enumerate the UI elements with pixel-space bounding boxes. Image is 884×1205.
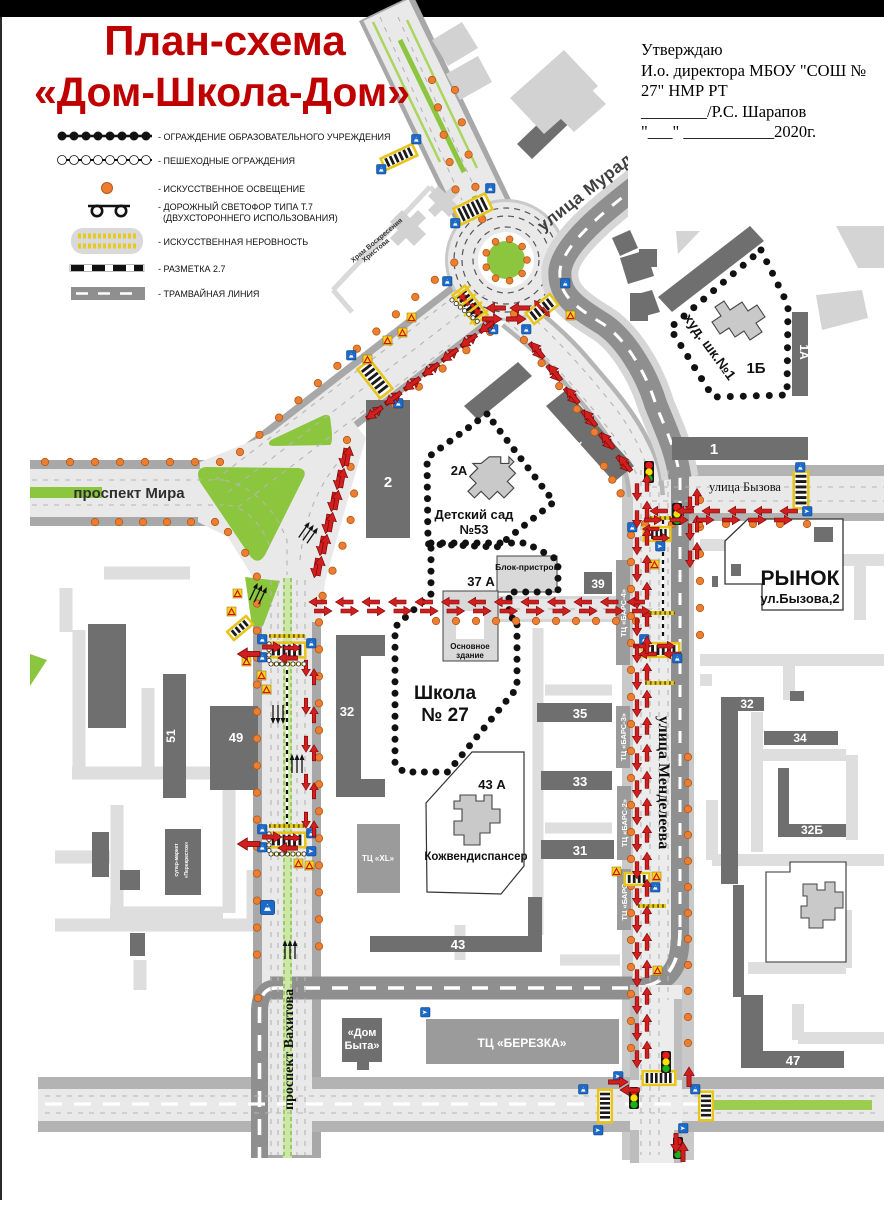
svg-text:47: 47 xyxy=(786,1053,800,1068)
svg-text:32: 32 xyxy=(740,697,754,711)
svg-text:Детский сад: Детский сад xyxy=(435,507,515,522)
svg-text:43: 43 xyxy=(451,937,465,952)
svg-text:49: 49 xyxy=(229,730,243,745)
svg-text:32: 32 xyxy=(340,704,354,719)
svg-text:1А: 1А xyxy=(797,344,811,360)
svg-text:РЫНОК: РЫНОК xyxy=(761,567,840,590)
svg-text:улица Бызова: улица Бызова xyxy=(709,480,781,494)
svg-text:И.о. директора МБОУ "СОШ №: И.о. директора МБОУ "СОШ № xyxy=(641,61,866,80)
svg-text:Блок-пристрой: Блок-пристрой xyxy=(495,562,559,572)
svg-text:34: 34 xyxy=(793,731,807,745)
svg-text:32Б: 32Б xyxy=(801,823,823,837)
svg-text:супер-маркет: супер-маркет xyxy=(174,843,180,877)
svg-text:31: 31 xyxy=(573,843,587,858)
svg-text:1: 1 xyxy=(710,441,718,458)
svg-text:(ДВУХСТОРОННЕГО ИСПОЛЬЗОВАНИЯ): (ДВУХСТОРОННЕГО ИСПОЛЬЗОВАНИЯ) xyxy=(163,213,338,223)
svg-text:проспект Мира: проспект Мира xyxy=(73,485,185,502)
svg-text:ТЦ «БАРС-3»: ТЦ «БАРС-3» xyxy=(619,713,628,761)
svg-text:Основное: Основное xyxy=(450,642,490,651)
svg-text:ул.Бызова,2: ул.Бызова,2 xyxy=(760,591,839,606)
svg-text:улица Менделеева: улица Менделеева xyxy=(655,716,672,849)
svg-text:Школа: Школа xyxy=(414,683,477,704)
svg-text:«Дом: «Дом xyxy=(348,1027,377,1039)
svg-text:здание: здание xyxy=(456,651,484,660)
svg-text:План-схема: План-схема xyxy=(104,17,346,64)
svg-text:№ 27: № 27 xyxy=(421,705,469,726)
svg-text:- РАЗМЕТКА 2.7: - РАЗМЕТКА 2.7 xyxy=(158,264,226,274)
svg-text:проспект Вахитова: проспект Вахитова xyxy=(282,989,297,1110)
svg-text:51: 51 xyxy=(164,729,178,743)
svg-text:37 А: 37 А xyxy=(467,574,495,589)
svg-text:- ПЕШЕХОДНЫЕ ОГРАЖДЕНИЯ: - ПЕШЕХОДНЫЕ ОГРАЖДЕНИЯ xyxy=(158,156,295,166)
svg-text:ТЦ «БЕРЕЗКА»: ТЦ «БЕРЕЗКА» xyxy=(478,1036,567,1050)
svg-text:Кожвендиспансер: Кожвендиспансер xyxy=(424,851,527,863)
svg-text:Быта»: Быта» xyxy=(345,1040,380,1052)
svg-text:№53: №53 xyxy=(460,522,489,537)
svg-text:«Перекресток»: «Перекресток» xyxy=(184,841,190,878)
svg-text:39: 39 xyxy=(591,577,605,591)
svg-text:- ОГРАЖДЕНИЕ ОБРАЗОВАТЕЛЬНОГО: - ОГРАЖДЕНИЕ ОБРАЗОВАТЕЛЬНОГО УЧРЕЖДЕНИЯ xyxy=(158,132,390,142)
svg-text:"___" ___________2020г.: "___" ___________2020г. xyxy=(641,122,816,141)
svg-text:2: 2 xyxy=(384,474,392,491)
svg-text:35: 35 xyxy=(573,706,587,721)
svg-text:ТЦ «XL»: ТЦ «XL» xyxy=(362,854,395,863)
svg-text:- ИСКУССТВЕННОЕ ОСВЕЩЕНИЕ: - ИСКУССТВЕННОЕ ОСВЕЩЕНИЕ xyxy=(158,184,305,194)
svg-text:27" НМР РТ: 27" НМР РТ xyxy=(641,81,728,100)
svg-text:Утверждаю: Утверждаю xyxy=(641,40,723,59)
svg-text:2А: 2А xyxy=(451,463,468,478)
svg-text:- ДОРОЖНЫЙ СВЕТОФОР ТИПА Т.7: - ДОРОЖНЫЙ СВЕТОФОР ТИПА Т.7 xyxy=(158,201,313,212)
svg-text:1Б: 1Б xyxy=(746,360,765,377)
svg-text:33: 33 xyxy=(573,774,587,789)
svg-text:- ИСКУССТВЕННАЯ НЕРОВНОСТЬ: - ИСКУССТВЕННАЯ НЕРОВНОСТЬ xyxy=(158,237,308,247)
svg-text:- ТРАМВАЙНАЯ ЛИНИЯ: - ТРАМВАЙНАЯ ЛИНИЯ xyxy=(158,288,259,299)
svg-text:________/Р.С. Шарапов: ________/Р.С. Шарапов xyxy=(640,102,806,121)
svg-text:«Дом-Школа-Дом»: «Дом-Школа-Дом» xyxy=(34,69,410,115)
svg-text:43 А: 43 А xyxy=(478,777,506,792)
